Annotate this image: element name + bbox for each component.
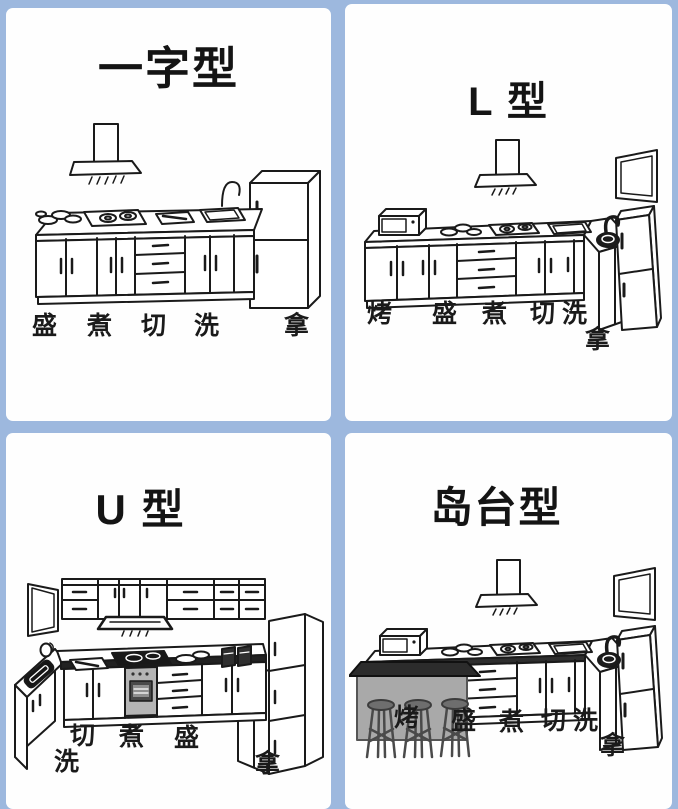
panel-title: 岛台型	[345, 487, 672, 529]
workflow-step-label: 洗	[194, 314, 219, 339]
workflow-step-label: 盛	[32, 314, 57, 339]
range-hood-icon	[70, 124, 141, 184]
cooktop-icon	[112, 651, 171, 666]
sink-icon	[200, 182, 245, 222]
workflow-step-label: 盛	[174, 726, 199, 751]
workflow-step-label: 洗	[54, 750, 79, 775]
workflow-step-label: 煮	[87, 314, 112, 339]
workflow-step-label: 煮	[119, 725, 144, 750]
workflow-step-label: 煮	[482, 302, 507, 327]
workflow-step-label: 盛	[451, 709, 476, 734]
l-kitchen-drawing	[349, 132, 665, 364]
workflow-step-label: 烤	[367, 302, 392, 327]
panel-island: 岛台型	[345, 433, 672, 809]
workflow-step-label: 煮	[499, 710, 524, 735]
wall-cabinets-icon	[62, 579, 265, 619]
workflow-step-label: 拿	[600, 734, 625, 759]
range-hood-icon	[476, 560, 537, 615]
workflow-step-label: 拿	[255, 752, 280, 777]
window-icon	[28, 584, 58, 636]
workflow-step-label: 盛	[432, 302, 457, 327]
workflow-step-label: 切	[141, 314, 166, 339]
workflow-step-label: 拿	[284, 314, 309, 339]
panel-l-shape: L 型	[345, 4, 672, 421]
cooktop-icon	[84, 210, 146, 226]
workflow-step-label: 洗	[562, 302, 587, 327]
workflow-step-label: 切	[541, 709, 566, 734]
panel-u-shape: U 型	[6, 433, 331, 809]
sink-icon	[549, 642, 592, 654]
kitchen-layouts-infographic: { "colors": { "frame_blue": "#9db8de", "…	[0, 0, 678, 809]
cooktop-icon	[489, 223, 539, 235]
range-hood-icon	[475, 140, 536, 195]
workflow-step-label: 切	[70, 724, 95, 749]
refrigerator-icon	[250, 171, 320, 308]
window-icon	[616, 150, 657, 202]
straight-kitchen-drawing	[14, 118, 326, 320]
workflow-step-label: 拿	[585, 328, 610, 353]
microwave-oven-icon	[380, 629, 427, 655]
workflow-step-label: 烤	[394, 706, 419, 731]
cutting-board-icon	[70, 658, 108, 670]
cooktop-icon	[490, 643, 540, 655]
workflow-step-label: 切	[530, 302, 555, 327]
panel-title: 一字型	[6, 46, 331, 91]
panel-title: L 型	[345, 82, 672, 122]
base-cabinets	[64, 662, 266, 727]
window-icon	[614, 568, 655, 620]
sink-icon	[548, 222, 591, 234]
workflow-step-label: 洗	[573, 709, 598, 734]
range-hood-icon	[98, 617, 172, 636]
panel-title: U 型	[6, 489, 331, 531]
refrigerator-icon	[616, 206, 661, 330]
oven-icon	[125, 667, 157, 716]
microwave-oven-icon	[379, 209, 426, 235]
panel-straight-line: 一字型	[6, 8, 331, 421]
cutting-board-icon	[156, 212, 194, 224]
